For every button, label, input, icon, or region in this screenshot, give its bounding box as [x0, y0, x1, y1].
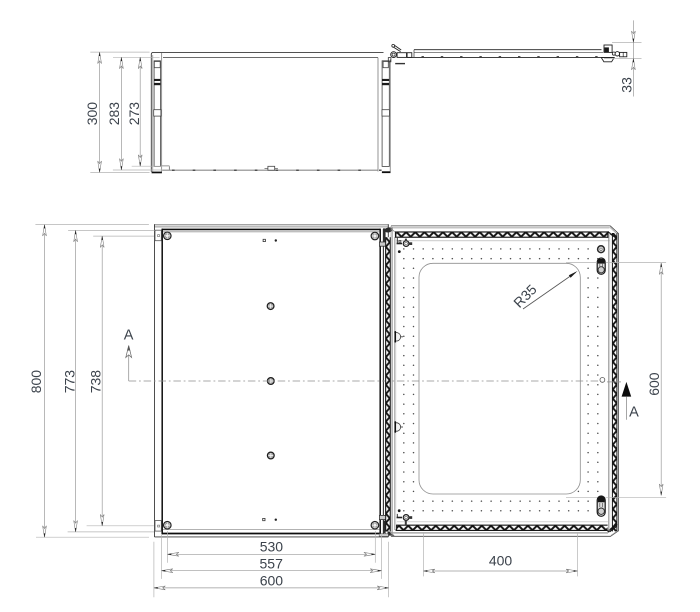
svg-text:600: 600	[646, 372, 662, 396]
svg-text:300: 300	[84, 102, 100, 126]
svg-text:530: 530	[260, 539, 284, 555]
svg-text:600: 600	[260, 573, 284, 589]
svg-text:A: A	[629, 405, 639, 421]
svg-text:400: 400	[489, 552, 513, 568]
svg-text:557: 557	[260, 555, 284, 571]
svg-text:273: 273	[126, 102, 142, 126]
svg-text:800: 800	[28, 370, 44, 394]
svg-text:738: 738	[88, 370, 104, 394]
svg-text:283: 283	[106, 102, 122, 126]
svg-text:773: 773	[62, 370, 78, 394]
svg-text:A: A	[124, 328, 134, 344]
svg-text:33: 33	[618, 77, 634, 93]
